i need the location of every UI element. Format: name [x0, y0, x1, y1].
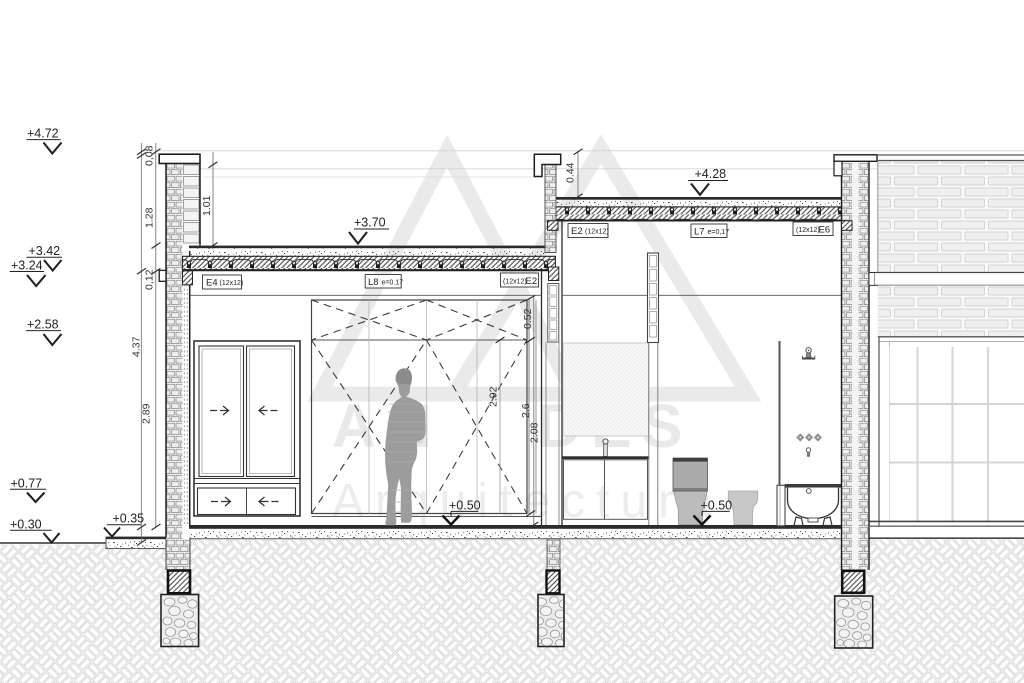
svg-text:+3.70: +3.70: [354, 216, 386, 230]
svg-text:0,12: 0,12: [144, 269, 156, 290]
svg-text:1.28: 1.28: [144, 207, 156, 228]
svg-text:+3.42: +3.42: [29, 244, 61, 258]
svg-text:(12x12): (12x12): [585, 229, 609, 236]
svg-text:L7: L7: [694, 227, 705, 238]
svg-text:(12x12): (12x12): [220, 280, 244, 287]
svg-text:(12x12): (12x12): [503, 279, 527, 286]
svg-text:2.6: 2.6: [520, 403, 532, 418]
svg-text:+0.50: +0.50: [701, 499, 733, 513]
svg-text:+0.50: +0.50: [449, 499, 481, 513]
svg-text:E2: E2: [571, 226, 583, 237]
svg-text:e=0.17: e=0.17: [382, 280, 404, 287]
svg-text:E4: E4: [206, 278, 218, 289]
svg-text:+2.58: +2.58: [27, 318, 59, 332]
svg-text:2.92: 2.92: [488, 386, 500, 407]
svg-text:(12x12): (12x12): [796, 227, 820, 234]
svg-text:0.44: 0.44: [565, 162, 577, 183]
svg-text:2.89: 2.89: [141, 403, 153, 424]
svg-text:2.08: 2.08: [529, 422, 541, 443]
svg-text:+0.30: +0.30: [10, 518, 42, 532]
svg-text:L8: L8: [368, 277, 379, 288]
svg-text:+0.77: +0.77: [11, 477, 43, 491]
svg-text:E6: E6: [819, 225, 831, 236]
svg-text:0,08: 0,08: [144, 145, 156, 166]
svg-text:1.01: 1.01: [201, 195, 213, 216]
svg-text:+0.35: +0.35: [113, 512, 145, 526]
svg-text:0.52: 0.52: [522, 308, 534, 329]
svg-text:e=0,17: e=0,17: [708, 229, 730, 236]
svg-text:+3.24: +3.24: [11, 259, 43, 273]
svg-text:+4.72: +4.72: [27, 127, 59, 141]
svg-text:E2: E2: [526, 276, 538, 287]
svg-text:+4.28: +4.28: [695, 167, 727, 181]
svg-text:4.37: 4.37: [131, 336, 143, 357]
